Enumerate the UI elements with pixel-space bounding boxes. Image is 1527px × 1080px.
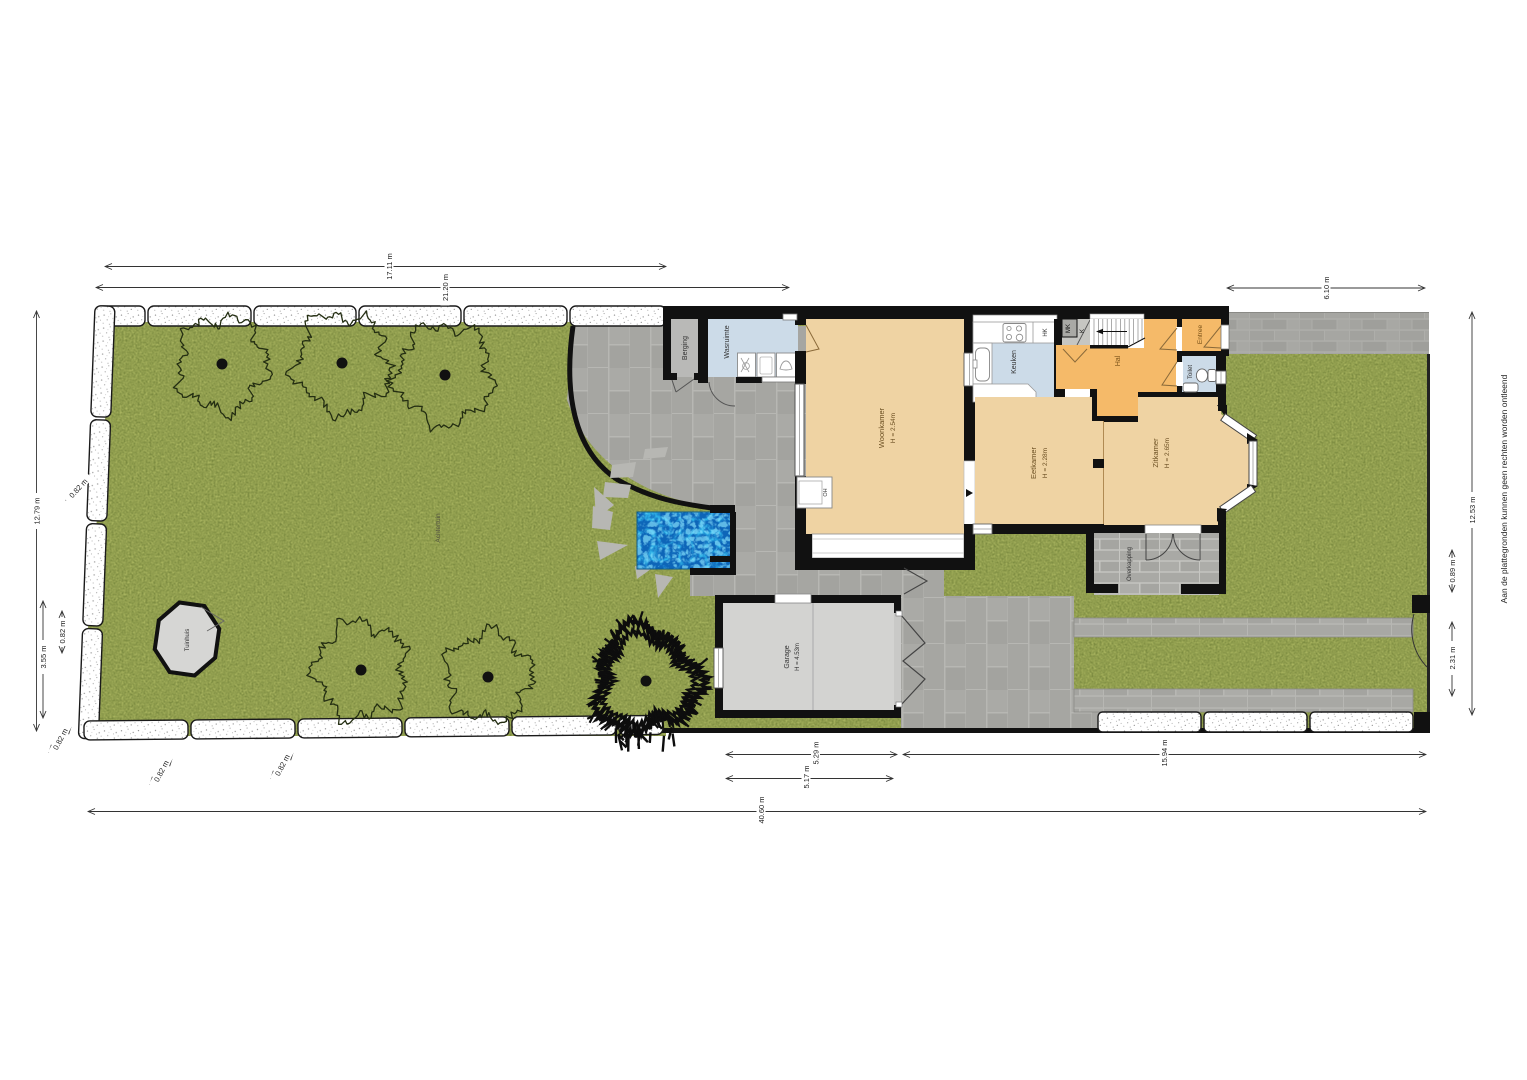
svg-text:Wasruimte: Wasruimte (724, 325, 731, 358)
svg-text:17.11 m: 17.11 m (385, 253, 394, 280)
svg-text:12.79 m: 12.79 m (33, 497, 42, 524)
svg-text:Berging: Berging (682, 336, 689, 360)
svg-text:MK: MK (1066, 324, 1072, 333)
svg-text:21.20 m: 21.20 m (441, 274, 450, 301)
svg-text:Tuinhuis: Tuinhuis (185, 629, 191, 651)
svg-text:H = 2.28m: H = 2.28m (1042, 448, 1049, 478)
svg-text:Entree: Entree (1197, 325, 1204, 345)
svg-text:2.31 m: 2.31 m (1448, 647, 1457, 670)
svg-text:Achtertuin: Achtertuin (435, 513, 442, 543)
svg-text:6.10 m: 6.10 m (1322, 277, 1331, 300)
svg-text:Toilet: Toilet (1188, 365, 1194, 379)
svg-text:Keuken: Keuken (1011, 350, 1018, 374)
svg-text:Hal: Hal (1115, 355, 1122, 366)
svg-text:Overkapping: Overkapping (1127, 547, 1133, 581)
svg-text:5.17 m: 5.17 m (802, 766, 811, 789)
svg-text:Garage: Garage (784, 645, 791, 668)
svg-text:HK: HK (1043, 328, 1049, 336)
svg-text:Eetkamer: Eetkamer (1029, 446, 1038, 479)
svg-text:3.55 m: 3.55 m (39, 646, 48, 669)
svg-text:0.89 m: 0.89 m (1448, 560, 1457, 583)
svg-text:0.82 m: 0.82 m (58, 621, 67, 644)
svg-text:H = 4.53m: H = 4.53m (795, 643, 801, 671)
svg-text:K: K (1080, 329, 1086, 333)
svg-text:H = 2.65m: H = 2.65m (1164, 438, 1171, 468)
svg-text:H = 2.54m: H = 2.54m (890, 413, 897, 443)
svg-text:Aan de plattegronden kunnen ge: Aan de plattegronden kunnen geen rechten… (1499, 374, 1509, 603)
svg-text:15.94 m: 15.94 m (1160, 739, 1169, 766)
svg-text:Zitkamer: Zitkamer (1151, 438, 1160, 468)
svg-text:12.53 m: 12.53 m (1468, 496, 1477, 523)
svg-text:OH: OH (823, 488, 829, 496)
svg-text:Woonkamer: Woonkamer (877, 407, 886, 448)
svg-text:40.60 m: 40.60 m (757, 796, 766, 823)
svg-text:5.29 m: 5.29 m (812, 742, 821, 765)
